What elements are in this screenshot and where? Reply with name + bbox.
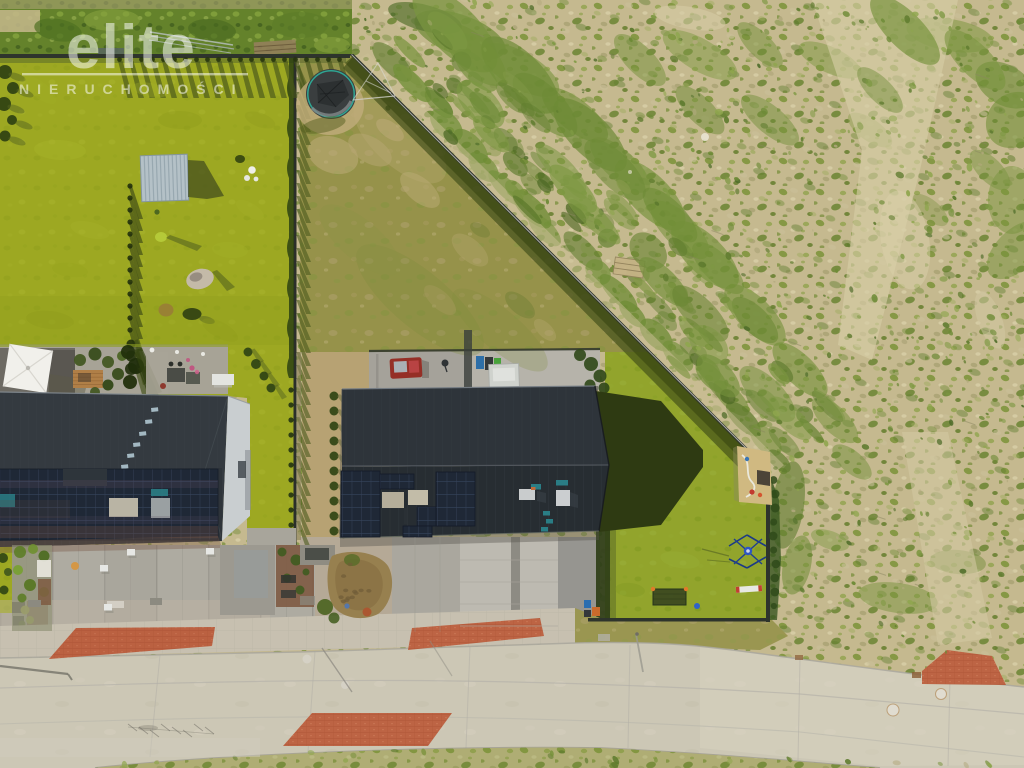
svg-text:elite: elite (66, 13, 196, 82)
svg-text:NIERUCHOMOŚCI: NIERUCHOMOŚCI (19, 80, 244, 97)
